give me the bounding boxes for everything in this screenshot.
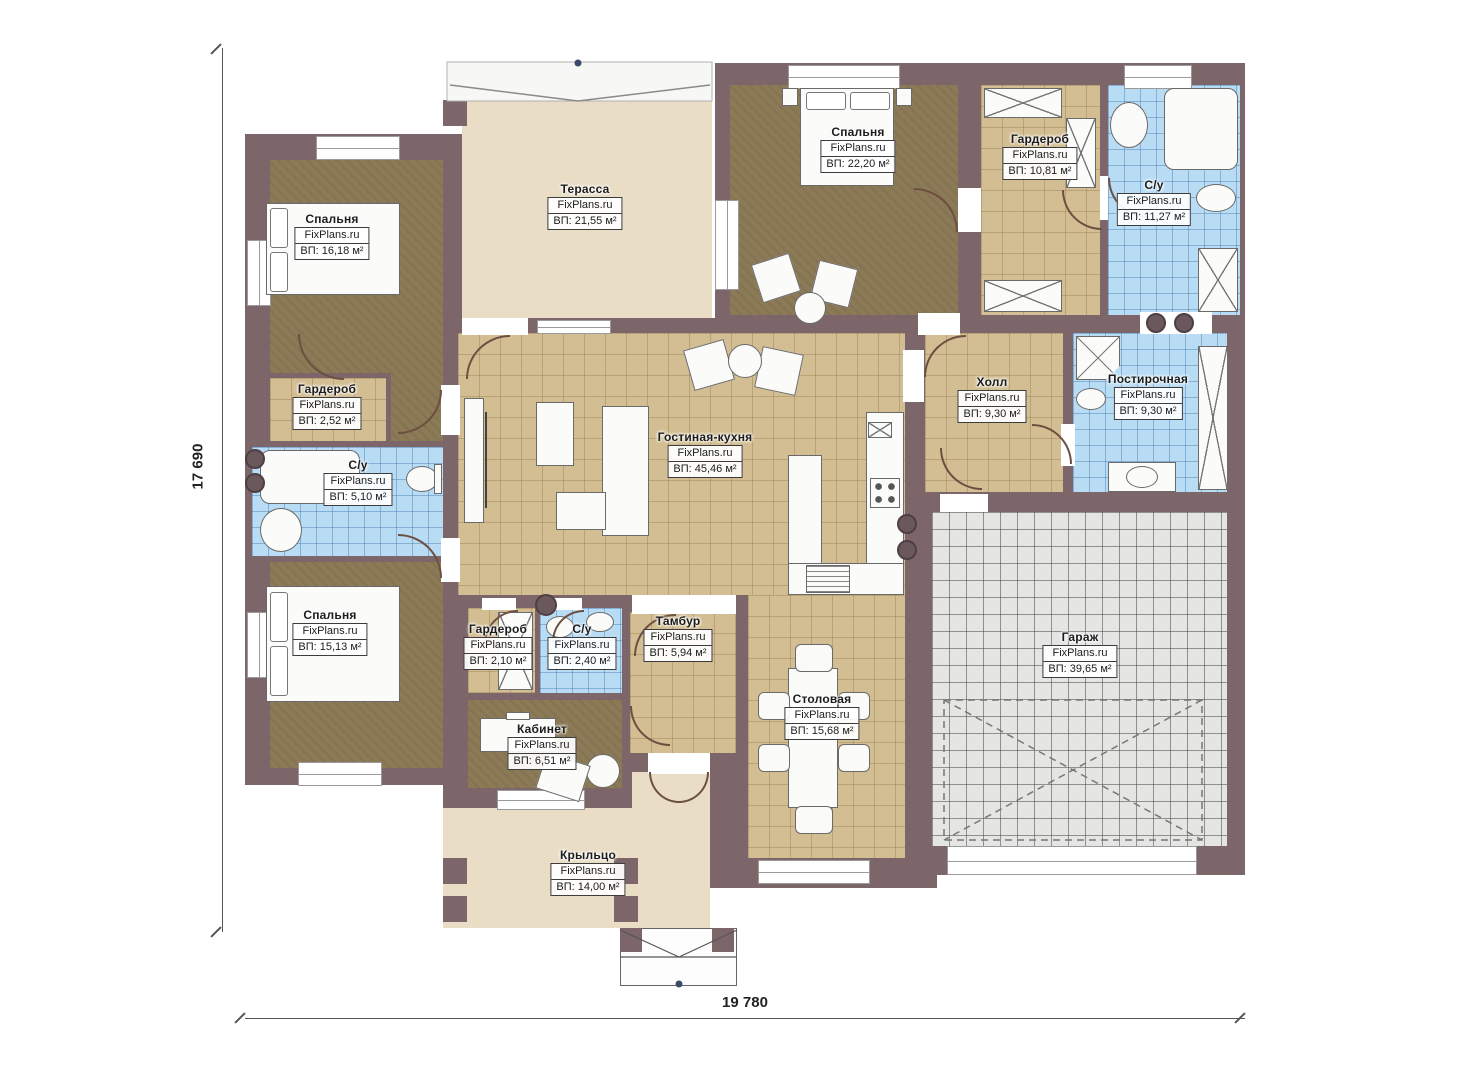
door-opening [441, 385, 460, 435]
room-area: ВП: 45,46 м² [668, 462, 741, 477]
armchair-icon [754, 346, 804, 396]
door-opening [632, 595, 736, 614]
room-label-tambour: Тамбур FixPlans.ruВП: 5,94 м² [643, 614, 712, 662]
room-name: Терасса [547, 182, 622, 196]
room-label-wardrobe-252: Гардероб FixPlans.ruВП: 2,52 м² [292, 382, 361, 430]
room-area: ВП: 21,55 м² [548, 214, 621, 229]
room-watermark: FixPlans.ru [548, 198, 621, 214]
roof-node-dot [575, 60, 582, 67]
dimension-line-horizontal [245, 1018, 1245, 1019]
room-area: ВП: 5,10 м² [324, 490, 391, 505]
room-watermark: FixPlans.ru [1114, 388, 1181, 404]
pillow-icon [806, 92, 846, 110]
room-area: ВП: 6,51 м² [508, 754, 575, 769]
room-name: Постирочная [1108, 372, 1188, 386]
room-area: ВП: 2,10 м² [464, 654, 531, 669]
wardrobe-shelf-icon [984, 280, 1062, 312]
toilet-icon [1076, 388, 1106, 410]
dimension-label-width: 19 780 [722, 994, 768, 1011]
room-area: ВП: 16,18 м² [295, 244, 368, 259]
stove-icon [870, 478, 900, 508]
pillow-icon [270, 592, 288, 642]
pillow-icon [270, 646, 288, 696]
kitchen-sink-icon [868, 422, 892, 438]
room-name: Крыльцо [550, 848, 625, 862]
toilet-icon [1196, 184, 1236, 212]
chair-icon [586, 754, 620, 788]
floor-garage [932, 512, 1227, 846]
room-label-garage: Гараж FixPlans.ruВП: 39,65 м² [1042, 630, 1117, 678]
sink-icon [260, 508, 302, 552]
room-name: С/у [1117, 178, 1191, 192]
window [758, 860, 870, 884]
window [788, 65, 900, 89]
room-label-terrace: Терасса FixPlans.ruВП: 21,55 м² [547, 182, 622, 230]
tv-bench-icon [464, 398, 484, 523]
room-name: Гардероб [1002, 132, 1077, 146]
room-label-porch: Крыльцо FixPlans.ruВП: 14,00 м² [550, 848, 625, 896]
room-area: ВП: 9,30 м² [958, 407, 1025, 422]
room-label-bathroom-1127: С/у FixPlans.ruВП: 11,27 м² [1117, 178, 1191, 226]
chair-icon [758, 744, 790, 772]
room-watermark: FixPlans.ru [1043, 646, 1116, 662]
cabinet-shelf-icon [1198, 248, 1238, 312]
room-label-hall: Холл FixPlans.ruВП: 9,30 м² [957, 375, 1026, 423]
monitor-icon [506, 712, 530, 720]
door-opening [903, 350, 924, 402]
door-opening [482, 598, 516, 610]
pillar [443, 896, 467, 922]
room-watermark: FixPlans.ru [293, 398, 360, 414]
pillar [620, 928, 642, 952]
room-area: ВП: 15,13 м² [293, 640, 366, 655]
room-name: С/у [323, 458, 392, 472]
chair-icon [838, 744, 870, 772]
dimension-tick [234, 1012, 245, 1023]
room-label-wardrobe-210: Гардероб FixPlans.ruВП: 2,10 м² [463, 622, 532, 670]
room-watermark: FixPlans.ru [464, 638, 531, 654]
room-area: ВП: 22,20 м² [821, 157, 894, 172]
room-label-wardrobe-1081: Гардероб FixPlans.ruВП: 10,81 м² [1002, 132, 1077, 180]
boiler-icon [897, 514, 917, 534]
chair-icon [795, 644, 833, 672]
room-name: Гостиная-кухня [658, 430, 753, 444]
chair-icon [795, 806, 833, 834]
wardrobe-shelf-icon [984, 88, 1062, 118]
room-watermark: FixPlans.ru [1118, 194, 1190, 210]
toilet-tank-icon [434, 464, 442, 494]
sofa-icon [602, 406, 649, 536]
room-name: Холл [957, 375, 1026, 389]
dimension-tick [210, 43, 221, 54]
room-label-bathroom-510: С/у FixPlans.ruВП: 5,10 м² [323, 458, 392, 506]
garage-door [947, 846, 1197, 875]
side-table-icon [794, 292, 826, 324]
door-opening [958, 188, 981, 232]
room-area: ВП: 2,52 м² [293, 414, 360, 429]
room-area: ВП: 39,65 м² [1043, 662, 1116, 677]
window [537, 320, 611, 334]
floor-plan: Спальня FixPlans.ruВП: 16,18 м² Терасса … [0, 0, 1474, 1080]
room-name: Кабинет [507, 722, 576, 736]
roof-outline [447, 62, 712, 101]
room-name: Столовая [784, 692, 859, 706]
boiler-icon [245, 449, 265, 469]
room-area: ВП: 15,68 м² [785, 724, 858, 739]
room-watermark: FixPlans.ru [958, 391, 1025, 407]
window [316, 136, 400, 160]
room-watermark: FixPlans.ru [668, 446, 741, 462]
window [1124, 65, 1192, 89]
room-label-bedroom-2: Спальня FixPlans.ruВП: 15,13 м² [292, 608, 367, 656]
room-label-cabinet: Кабинет FixPlans.ruВП: 6,51 м² [507, 722, 576, 770]
dimension-label-height: 17 690 [190, 427, 207, 507]
door-opening [940, 494, 988, 512]
room-area: ВП: 14,00 м² [551, 880, 624, 895]
room-watermark: FixPlans.ru [293, 624, 366, 640]
window [715, 200, 739, 290]
room-watermark: FixPlans.ru [324, 474, 391, 490]
door-opening [918, 313, 960, 335]
room-watermark: FixPlans.ru [1003, 148, 1076, 164]
room-label-bathroom-240: С/у FixPlans.ruВП: 2,40 м² [547, 622, 616, 670]
pillow-icon [270, 252, 288, 292]
room-label-dining: Столовая FixPlans.ruВП: 15,68 м² [784, 692, 859, 740]
room-area: ВП: 11,27 м² [1118, 210, 1190, 225]
washer-icon [1174, 313, 1194, 333]
pillow-icon [850, 92, 890, 110]
room-watermark: FixPlans.ru [785, 708, 858, 724]
pillar [712, 928, 734, 952]
pillar [443, 100, 467, 126]
sofa-icon [556, 492, 606, 530]
side-table-icon [728, 344, 762, 378]
room-label-bedroom-3: Спальня FixPlans.ruВП: 22,20 м² [820, 125, 895, 173]
room-name: Спальня [292, 608, 367, 622]
nightstand-icon [782, 88, 798, 106]
room-area: ВП: 5,94 м² [644, 646, 711, 661]
room-name: Спальня [294, 212, 369, 226]
room-name: Спальня [820, 125, 895, 139]
room-name: Тамбур [643, 614, 712, 628]
pillar [614, 896, 638, 922]
door-opening [441, 538, 460, 582]
room-name: Гараж [1042, 630, 1117, 644]
room-name: Гардероб [292, 382, 361, 396]
dimension-line-vertical [222, 48, 223, 932]
boiler-icon [897, 540, 917, 560]
washer-icon [1146, 313, 1166, 333]
sink-icon [1110, 102, 1148, 148]
door-opening [462, 318, 528, 335]
room-watermark: FixPlans.ru [508, 738, 575, 754]
window [298, 762, 382, 786]
fridge-icon [806, 565, 850, 593]
pillow-icon [270, 208, 288, 248]
room-name: С/у [547, 622, 616, 636]
front-door-opening [648, 753, 710, 774]
kitchen-island [788, 455, 822, 571]
room-label-living-kitchen: Гостиная-кухня FixPlans.ruВП: 45,46 м² [658, 430, 753, 478]
room-label-laundry: Постирочная FixPlans.ruВП: 9,30 м² [1108, 372, 1188, 420]
room-name: Гардероб [463, 622, 532, 636]
room-area: ВП: 2,40 м² [548, 654, 615, 669]
sink-icon [1126, 466, 1158, 488]
room-area: ВП: 10,81 м² [1003, 164, 1076, 179]
bathtub-icon [1164, 88, 1238, 170]
roof-valley-line [450, 85, 710, 101]
coffee-table-icon [536, 402, 574, 466]
wardrobe-shelf-icon [1198, 346, 1228, 490]
room-watermark: FixPlans.ru [295, 228, 368, 244]
column-icon [535, 594, 557, 616]
boiler-icon [245, 473, 265, 493]
room-watermark: FixPlans.ru [644, 630, 711, 646]
dimension-tick [210, 926, 221, 937]
room-watermark: FixPlans.ru [548, 638, 615, 654]
pillar [443, 858, 467, 884]
room-watermark: FixPlans.ru [551, 864, 624, 880]
room-area: ВП: 9,30 м² [1114, 404, 1181, 419]
room-watermark: FixPlans.ru [821, 141, 894, 157]
nightstand-icon [896, 88, 912, 106]
room-label-bedroom-1: Спальня FixPlans.ruВП: 16,18 м² [294, 212, 369, 260]
